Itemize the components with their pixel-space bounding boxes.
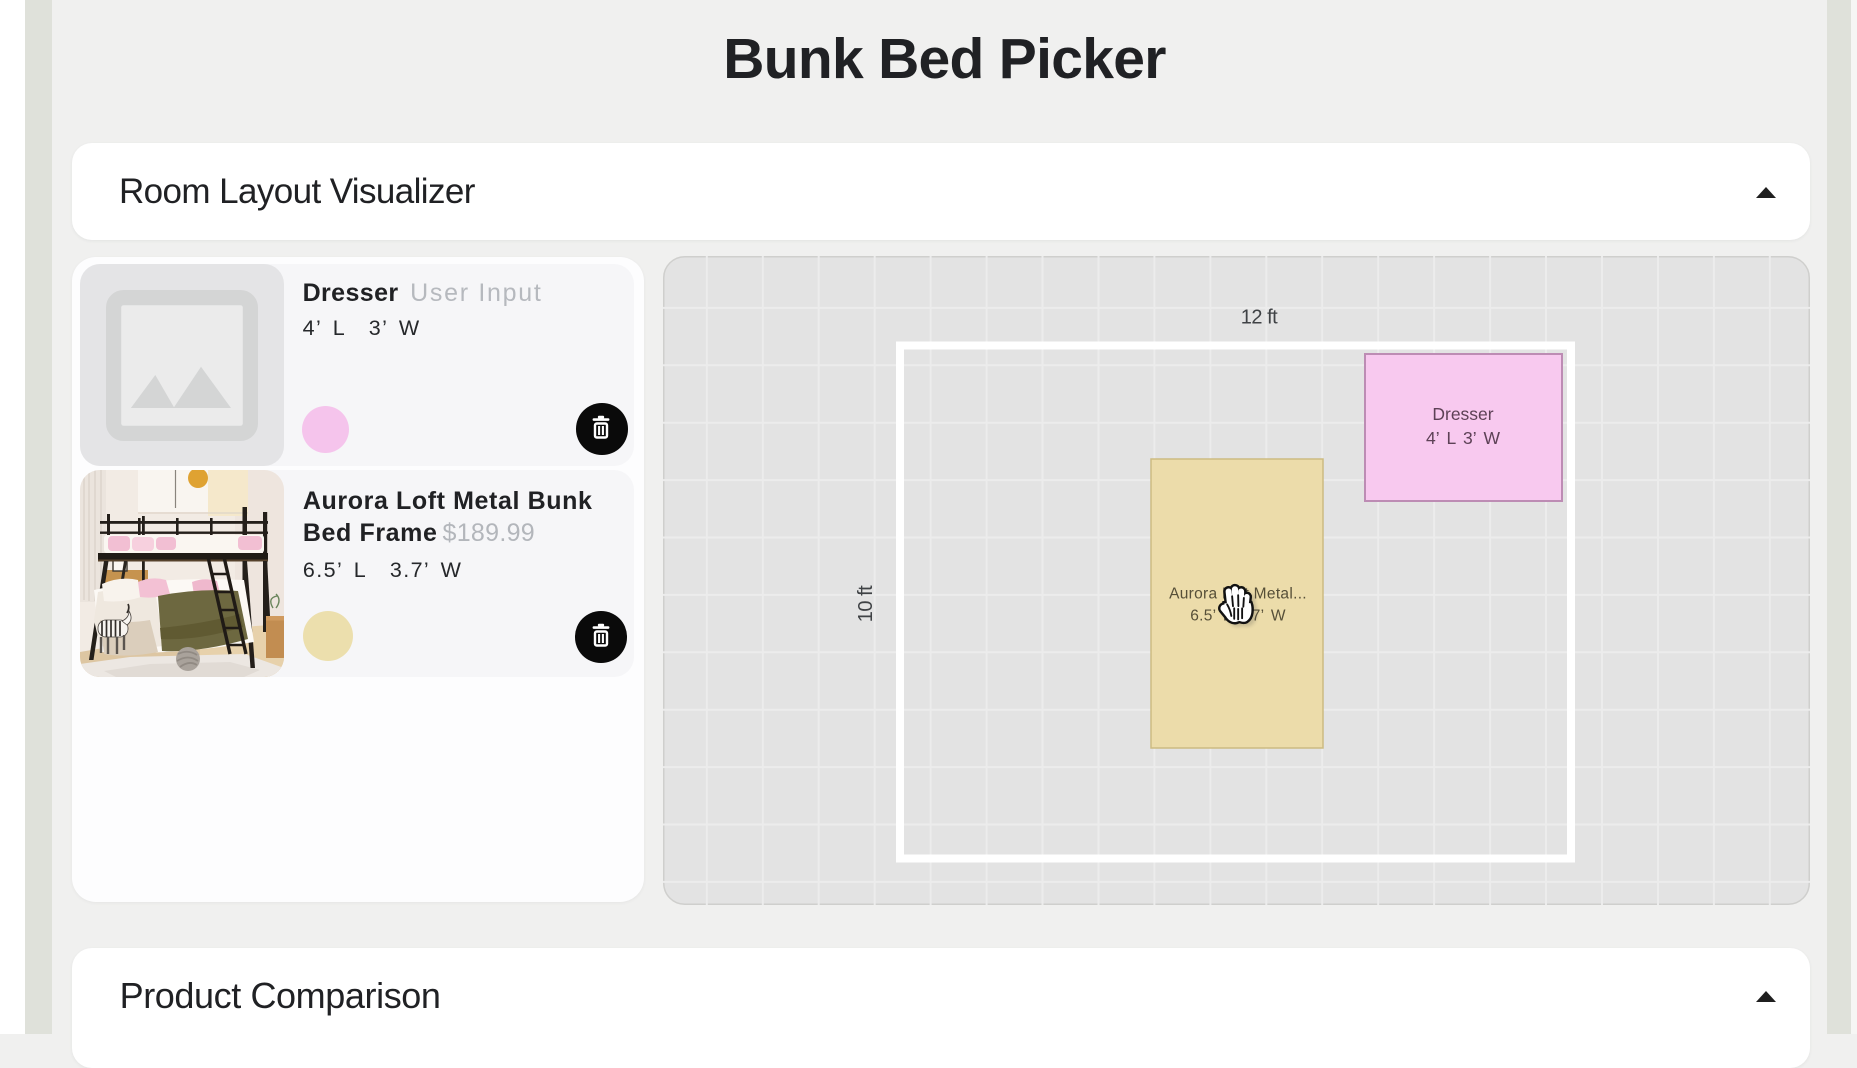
svg-text:10 ft: 10 ft [855, 585, 877, 622]
svg-text:12 ft: 12 ft [1241, 307, 1278, 329]
svg-text:4’ L 3’ W: 4’ L 3’ W [1426, 428, 1500, 448]
svg-text:Dresser: Dresser [1432, 404, 1493, 424]
